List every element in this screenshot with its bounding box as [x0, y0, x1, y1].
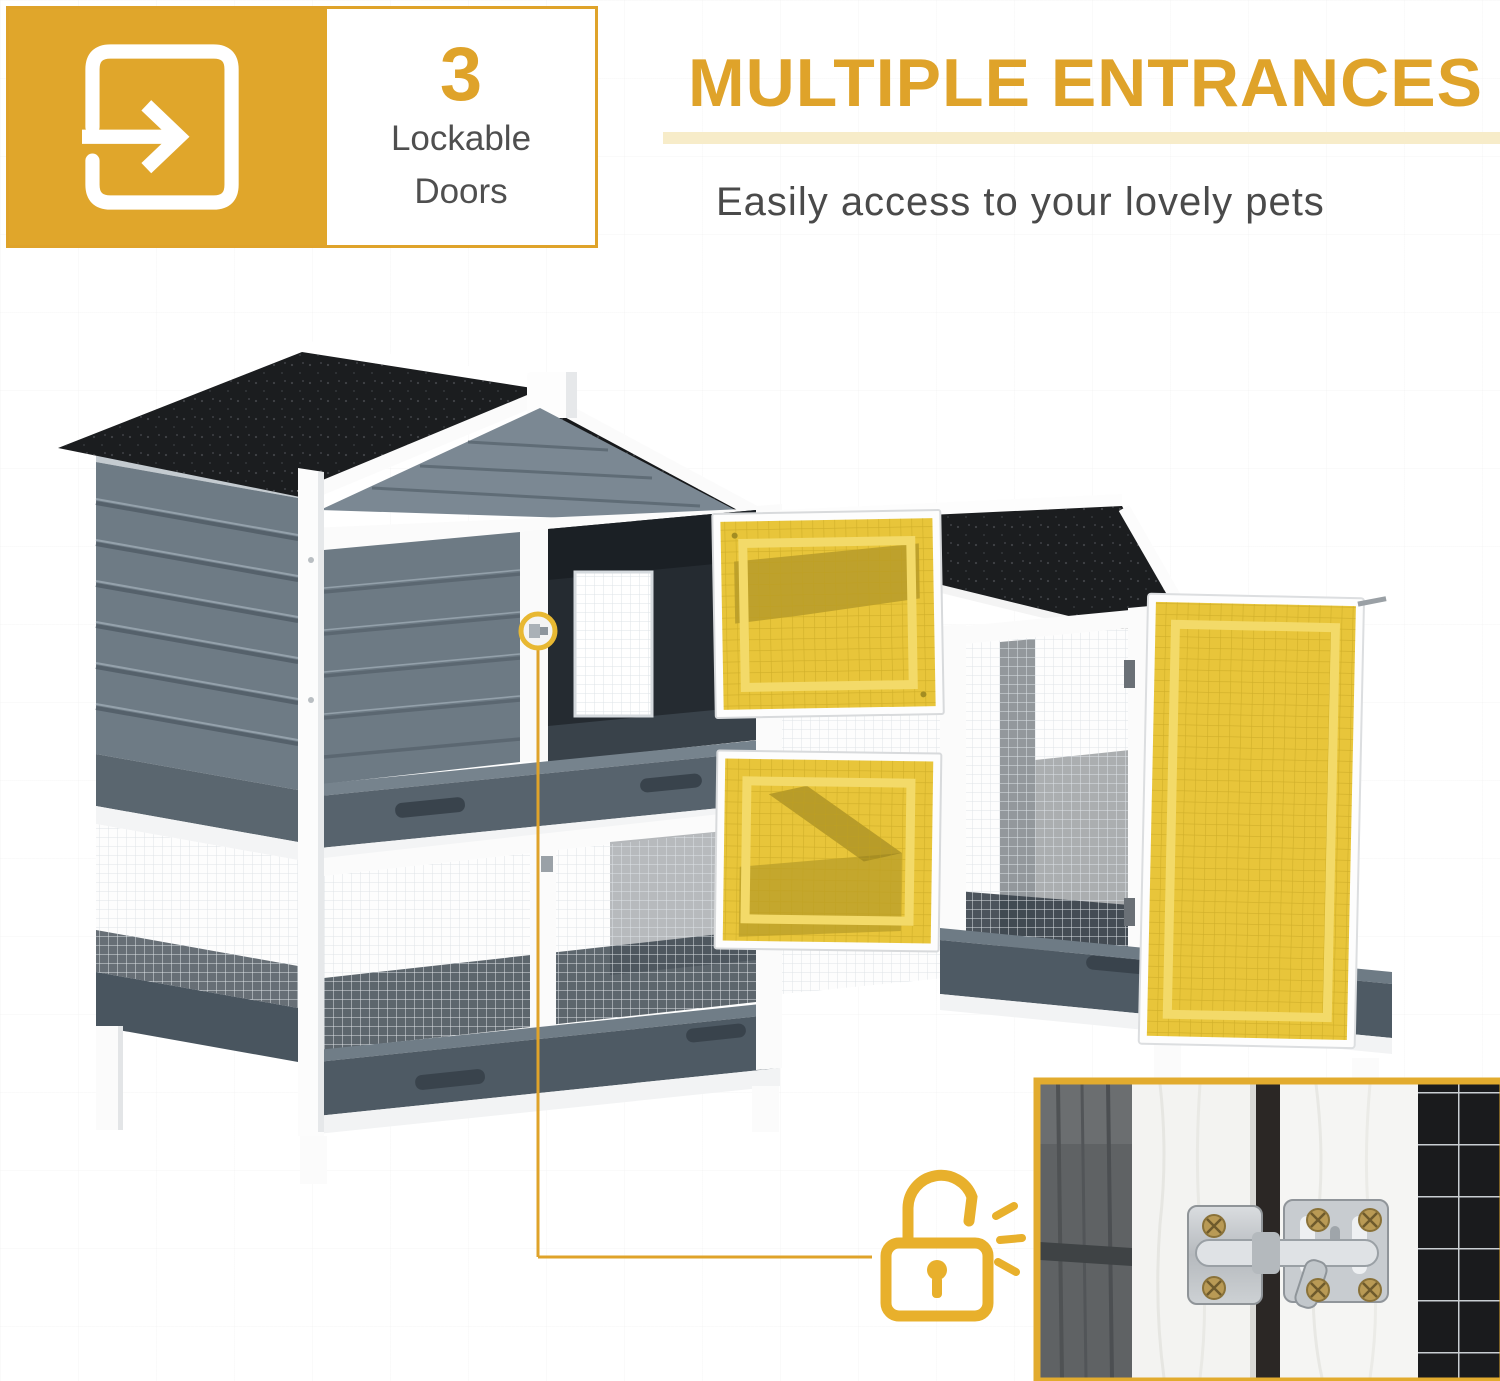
open-door-right-highlighted — [1139, 594, 1386, 1049]
inset-gray-wood — [1040, 1084, 1132, 1378]
open-door-bottom-highlighted — [715, 750, 942, 951]
screw — [308, 697, 314, 703]
padlock-shackle — [908, 1175, 972, 1243]
lower-door-latch — [541, 856, 553, 872]
product-photo-rabbit-hutch — [0, 0, 1500, 1381]
center-leg — [752, 1086, 779, 1132]
hutch-left-tower — [58, 340, 782, 1184]
bolt-collar — [1252, 1232, 1280, 1274]
open-door-top-highlighted — [712, 510, 944, 718]
keyhole-stem — [932, 1276, 942, 1298]
inset-latch-bolt — [1188, 1200, 1388, 1310]
lower-center-stile — [530, 847, 556, 1029]
padlock-unlocked-icon — [886, 1175, 1022, 1316]
finial-shade — [566, 372, 577, 418]
bolt-rod — [1196, 1240, 1378, 1266]
inset-wire-mesh — [1418, 1084, 1500, 1378]
leg-shade — [118, 1026, 123, 1130]
latch-mini-bolt — [540, 627, 548, 635]
screw — [308, 557, 314, 563]
door-hinge — [1124, 898, 1135, 926]
latch-detail-inset — [1037, 1081, 1500, 1381]
door-hinge — [1124, 660, 1135, 688]
latch-click-lines — [996, 1206, 1022, 1272]
clapboard-side-wall — [96, 442, 298, 790]
latch-mini — [529, 624, 540, 638]
upper-front-door-panel — [324, 532, 520, 784]
post-shade — [318, 472, 324, 1132]
front-left-leg — [300, 1136, 327, 1184]
back-left-leg — [96, 1026, 120, 1130]
